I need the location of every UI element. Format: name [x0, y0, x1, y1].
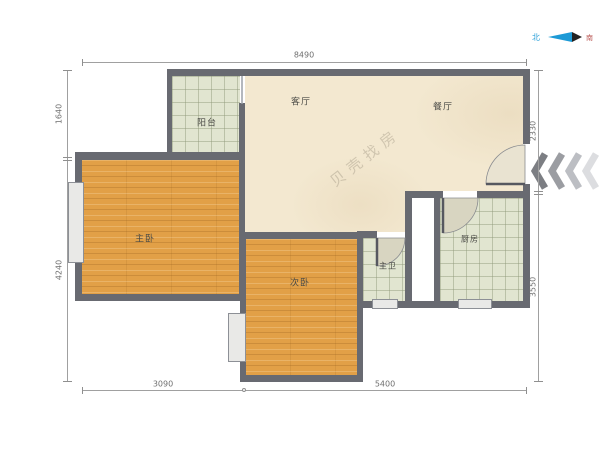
wall-kitchen-top-west [405, 191, 443, 198]
room-label-master-bedroom: 主卧 [135, 232, 155, 245]
wall-kitchen-left [434, 198, 440, 301]
room-label-balcony: 阳台 [197, 116, 217, 129]
second-bedroom-floor [246, 239, 357, 375]
dim-joint [242, 388, 246, 392]
master-bath-window [372, 299, 398, 309]
wall-kitchen-top-east [477, 191, 530, 198]
kitchen-window [458, 299, 492, 309]
compass-north-label: 北 [532, 32, 540, 43]
dim-tick [63, 157, 72, 158]
dim-line-bottom [82, 390, 527, 391]
second-bedroom-window [228, 313, 246, 362]
master-bedroom-floor [82, 160, 239, 294]
dim-tick [82, 387, 83, 394]
compass-south-label: 南 [586, 33, 593, 43]
entrance-arrows-icon [535, 154, 596, 188]
dim-tick [526, 387, 527, 394]
wall-second-bottom [240, 375, 363, 382]
dim-label-left-lower: 4240 [55, 260, 64, 280]
dim-tick [63, 70, 72, 71]
dim-label-right-lower: 3550 [529, 277, 538, 297]
room-label-dining-room: 餐厅 [433, 100, 453, 113]
room-label-master-bath: 主卫 [379, 261, 397, 272]
compass-needle-icon [548, 32, 582, 42]
dim-label-top: 8490 [294, 51, 314, 60]
dim-tick [534, 381, 543, 382]
wall-top [167, 69, 530, 76]
wall-bath-top [357, 231, 377, 238]
balcony-floor [172, 76, 240, 152]
dim-line-top [82, 62, 527, 63]
dim-label-bottom-right: 5400 [375, 380, 395, 389]
dim-tick [534, 70, 543, 71]
dim-tick [63, 160, 72, 161]
floorplan-canvas: 北 南 贝壳找房 阳台 客厅 餐厅 主卧 次卧 主卫 厨房 8490 3090 … [0, 0, 600, 455]
dim-label-right-upper: 2330 [529, 121, 538, 141]
room-label-living-room: 客厅 [291, 95, 311, 108]
dim-line-right [538, 70, 539, 382]
wall-master-bottom [75, 294, 245, 301]
wall-second-top [240, 232, 363, 239]
dim-tick [534, 191, 543, 192]
kitchen-floor [440, 198, 523, 301]
dim-tick [526, 59, 527, 66]
dim-tick [82, 59, 83, 66]
wall-master-top [75, 152, 245, 160]
room-label-kitchen: 厨房 [461, 234, 479, 245]
master-bedroom-window [68, 182, 84, 263]
dim-tick [534, 194, 543, 195]
room-label-second-bedroom: 次卧 [290, 276, 310, 289]
dim-label-bottom-left: 3090 [153, 380, 173, 389]
wall-bath-right [405, 191, 412, 308]
dim-label-left-upper: 1640 [55, 104, 64, 124]
wall-balcony-left [167, 76, 172, 155]
dim-tick [63, 381, 72, 382]
dim-line-left [67, 70, 68, 382]
